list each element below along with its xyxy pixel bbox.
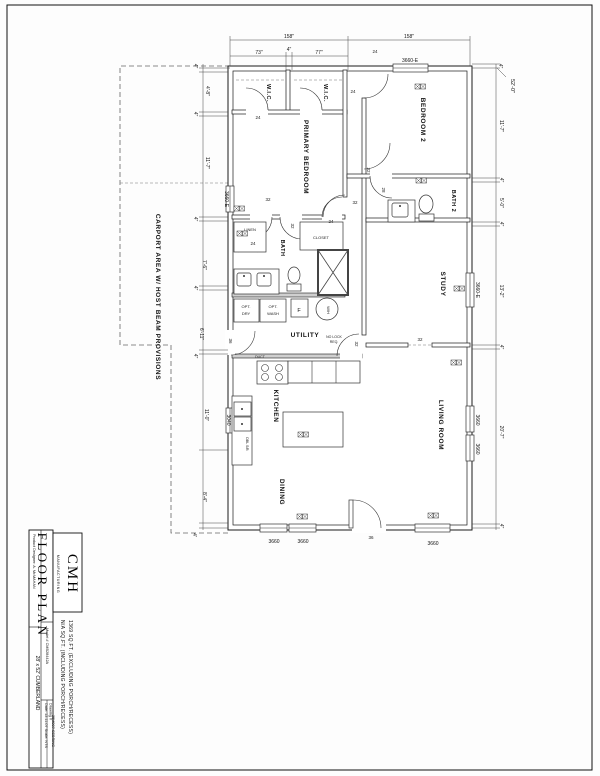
dim-label: 6'-11" (198, 328, 204, 341)
room-label-bedroom2: BEDROOM 2 (419, 98, 426, 143)
dim-label: 11'-7" (204, 157, 210, 170)
bath-toilet (288, 267, 300, 283)
label-carport-area: CARPORT AREA W/ HOST BEAM PROVISIONS (154, 214, 161, 380)
dim-label: 4" (192, 354, 198, 359)
label-opt-dry: OPT. (242, 304, 251, 309)
label-opt-dry: DRY (242, 311, 251, 316)
dim-label: 4" (498, 178, 504, 183)
label-water-heater: W/H (326, 306, 331, 314)
window-label: 3660 (474, 414, 480, 425)
window-label: 3660 (268, 539, 279, 545)
dim-label: 158" (404, 34, 414, 40)
bath-sink (237, 273, 251, 286)
room-label-bath: BATH (279, 240, 285, 257)
title-block: Product Designer: A. McMAHAN FLOOR PLAN … (29, 530, 82, 768)
label-closet: CLOSET (313, 235, 330, 240)
exterior-walls (228, 66, 472, 530)
dim-label: 158" (284, 34, 294, 40)
drawing-number: 25M007-SEBRING (51, 715, 55, 747)
door-label: 32 (265, 197, 271, 202)
date-scale: Date: 12.11.07 Scale: NTS (44, 703, 48, 748)
room-label-wic1: W.I.C. (265, 84, 271, 102)
dim-label: 73" (255, 50, 263, 56)
brand-logo: CMH (64, 554, 80, 594)
door-label: 28 (381, 187, 386, 193)
brand-sub: MANUFACTURING (56, 555, 60, 593)
door-label: 32 (354, 341, 359, 347)
room-label-utility: UTILITY (291, 332, 320, 339)
model-number: Model # CMB28442A (45, 628, 49, 665)
dim-label: 4" (192, 286, 198, 291)
label-no-lock: NO LOCK (326, 335, 342, 339)
bath2-toilet (419, 195, 433, 213)
room-label-living-room: LIVING ROOM (437, 400, 444, 450)
door-label: 32 (366, 167, 371, 173)
door-label: 36 (228, 338, 233, 344)
dim-label: 4" (192, 217, 198, 222)
kitchen-island (283, 412, 343, 447)
door-label: 36 (368, 535, 374, 540)
dim-label: 4" (192, 112, 198, 117)
dim-label: 4'-8" (204, 86, 210, 96)
dim-label: 7'-6" (201, 260, 207, 270)
label-opt-wash: WASH (267, 311, 279, 316)
label-linen: LINEN (244, 227, 256, 232)
room-label-dining: DINING (278, 479, 285, 505)
dim-label: 4" (498, 524, 504, 529)
window-label: 3660 (297, 539, 308, 545)
dim-label: 8'-4" (201, 492, 207, 502)
drawing-sheet: PRIMARY BEDROOM BEDROOM 2 W.I.C. W.I.C. … (0, 0, 600, 776)
dim-label: 20'-7" (498, 426, 504, 439)
sqft-excluding: 1369 SQ.FT. (EXCLUDING PORCH/RECESS) (67, 620, 73, 734)
window-label: 3660-E (402, 58, 419, 64)
range (257, 361, 288, 384)
dim-label: 4" (192, 64, 198, 69)
label-opt-wash: OPT. (269, 304, 278, 309)
dim-label: 4" (287, 47, 292, 53)
door-label: 24 (372, 49, 378, 54)
dim-label: 13'-2" (498, 285, 504, 298)
window-label: 3040 (225, 414, 231, 425)
dim-label-overall: 52'-0" (509, 79, 515, 93)
carport-outline (120, 66, 230, 533)
window-label: 3660 (474, 443, 480, 454)
bath-sink (257, 273, 271, 286)
room-label-kitchen: KITCHEN (272, 389, 279, 422)
sheet-title: FLOOR PLAN (35, 533, 50, 638)
dim-label: 77" (315, 50, 323, 56)
chase-box (318, 250, 348, 295)
label-no-lock: REQ. (330, 340, 339, 344)
window-label: 3660-E (223, 191, 229, 208)
floor-plan-drawing: PRIMARY BEDROOM BEDROOM 2 W.I.C. W.I.C. … (0, 0, 600, 776)
plan-name: 28' x 52' CUMBERLAND (34, 656, 40, 711)
door-label: 24 (328, 219, 334, 224)
door-label: 24 (250, 241, 256, 246)
dim-label: 5'-0" (498, 198, 504, 208)
room-label-bath2: BATH 2 (450, 190, 456, 212)
door-label: 32 (290, 223, 295, 229)
room-label-wic2: W.I.C. (322, 84, 328, 102)
sqft-including: N/A SQ.FT. (INCLUDING PORCH/RECESS) (59, 620, 65, 729)
room-label-primary-bedroom: PRIMARY BEDROOM (302, 120, 309, 194)
dim-label: 11'-0" (203, 409, 209, 422)
window-label: 3660-E (474, 282, 480, 299)
door-label: 24 (350, 89, 356, 94)
dim-label: 4" (497, 64, 503, 69)
room-label-study: STUDY (439, 271, 446, 296)
label-duct: DUCT (255, 355, 266, 359)
door-label: 24 (255, 115, 261, 120)
window-label: 3660 (427, 541, 438, 547)
door-label: 32 (352, 200, 358, 205)
dim-label: 4" (498, 222, 504, 227)
dim-label: 4" (498, 345, 504, 350)
door-label: 32 (417, 337, 423, 342)
kitchen-counter (288, 361, 360, 383)
dim-label: 11'-7" (498, 120, 504, 133)
dim-label: 4' (191, 533, 197, 537)
label-kitchen-sink: DBL S/B (245, 437, 249, 451)
